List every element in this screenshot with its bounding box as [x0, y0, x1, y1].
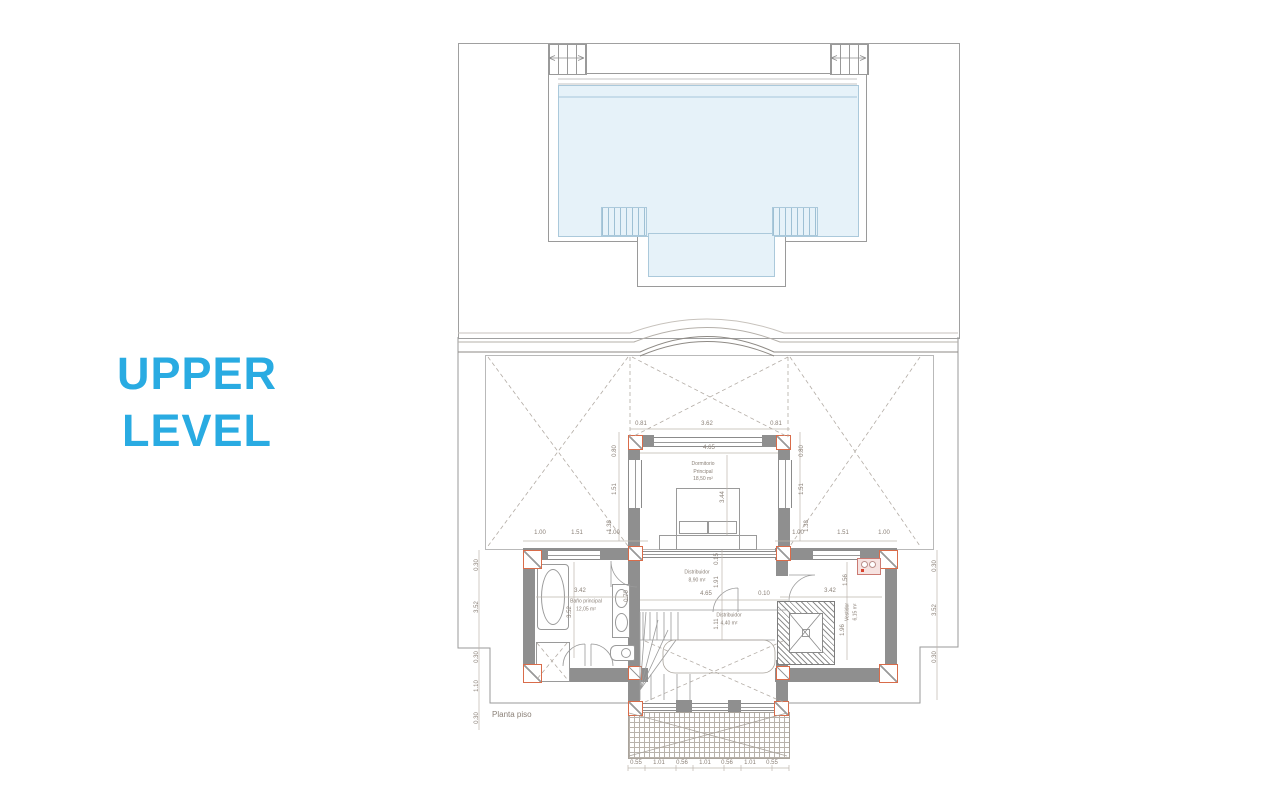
plan-caption: Planta piso: [492, 710, 532, 719]
room-label-layer: DormitorioPrincipal18,50 m²Baño principa…: [0, 0, 1280, 800]
room-label: DormitorioPrincipal18,50 m²: [691, 461, 714, 484]
room-label: Distribuidor4,40 m²: [716, 613, 741, 628]
room-label: Vestidor6,15 m²: [845, 603, 860, 621]
room-label: Baño principal12,05 m²: [570, 599, 602, 614]
room-label: Distribuidor8,90 m²: [684, 570, 709, 585]
